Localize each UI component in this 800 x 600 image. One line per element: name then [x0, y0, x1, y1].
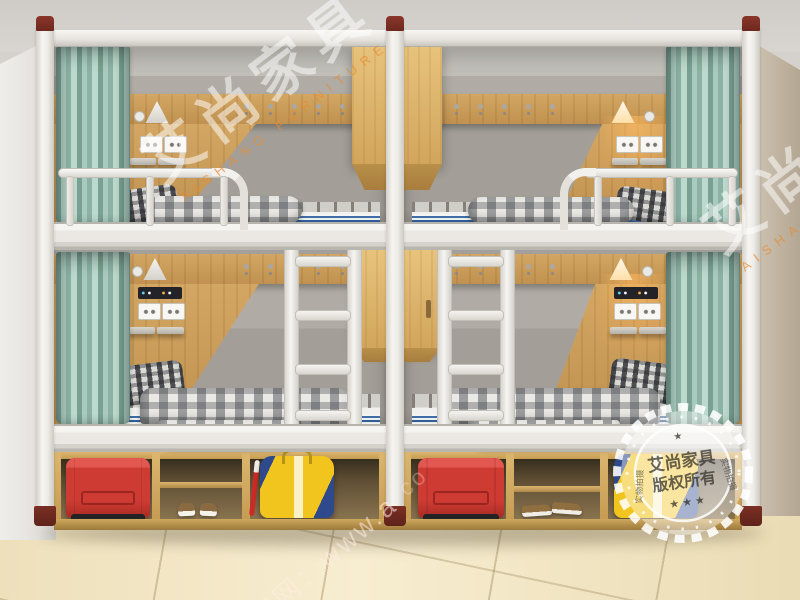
post-foot — [384, 506, 406, 526]
hook-row — [244, 104, 369, 109]
stamp-left-arc-text: 实物拍摄 — [634, 469, 645, 504]
wall-shelf — [639, 327, 666, 334]
coat-hook — [316, 104, 321, 109]
red-suitcase — [66, 458, 150, 518]
baby-shoe — [200, 503, 218, 517]
duffel-bag — [260, 456, 334, 518]
copyright-stamp: ★ 艾尚家具 版权所有 ★ ★ ★ 实物拍摄 实物拍摄 — [611, 401, 755, 545]
red-suitcase — [418, 458, 504, 518]
coat-hook — [454, 104, 459, 109]
suitcase-pocket — [433, 491, 488, 505]
guardrail-bar — [146, 176, 154, 226]
bed-post-center — [386, 28, 404, 510]
wall-hook — [642, 266, 653, 277]
cubby-shelf — [514, 486, 600, 492]
loafer-shoe — [552, 502, 583, 515]
coat-hook — [550, 104, 555, 109]
post-cap — [742, 16, 760, 31]
ladder-rail — [437, 248, 452, 426]
hook-row — [430, 104, 555, 109]
wall-hook — [134, 111, 145, 122]
right-wall — [756, 0, 800, 548]
wall-shelf — [610, 327, 637, 334]
power-outlet — [638, 303, 661, 320]
wall-shelf — [157, 327, 184, 334]
ladder-rung — [295, 310, 351, 321]
coat-hook — [244, 104, 249, 109]
curtain-lower-right — [666, 252, 740, 424]
duffel-strap — [294, 456, 303, 518]
ladder-rail — [284, 248, 299, 426]
ladder-rung — [448, 364, 504, 375]
coat-hook — [268, 264, 273, 269]
storage-divider — [506, 452, 514, 520]
usb-charger-panel — [138, 287, 182, 299]
wall-hook — [644, 111, 655, 122]
power-outlet — [640, 136, 663, 153]
ladder-left — [284, 248, 362, 424]
wall-hook — [132, 266, 143, 277]
guardrail-upper-right — [560, 168, 738, 224]
usb-charger-panel — [614, 287, 658, 299]
suitcase-pocket — [81, 491, 135, 505]
guardrail-bar — [666, 176, 674, 226]
wall-shelf — [128, 327, 155, 334]
stamp-top-star: ★ — [673, 431, 683, 443]
guardrail-tube — [58, 168, 224, 178]
curtain-lower-left — [56, 252, 130, 424]
guardrail-tube — [584, 168, 738, 178]
guardrail-bar — [594, 176, 602, 226]
coat-hook — [502, 104, 507, 109]
guardrail-bar — [66, 176, 74, 226]
wall-shelf — [612, 158, 638, 165]
guardrail-upper-left — [58, 168, 248, 224]
bed-post-left — [36, 28, 54, 510]
coat-hook — [478, 104, 483, 109]
coat-hook — [292, 104, 297, 109]
coat-hook — [550, 264, 555, 269]
power-outlet — [164, 136, 187, 153]
baby-shoe — [178, 503, 196, 517]
loafer-shoe — [522, 504, 553, 517]
cubby-shelf — [160, 482, 242, 488]
post-cap — [386, 16, 404, 31]
power-outlet — [140, 136, 163, 153]
coat-hook — [526, 264, 531, 269]
lamp-glow — [598, 274, 668, 330]
ladder-rung — [295, 410, 351, 421]
ladder-rail — [347, 248, 362, 426]
ladder-rung — [448, 310, 504, 321]
coat-hook — [340, 104, 345, 109]
coat-hook — [268, 104, 273, 109]
guardrail-bar — [220, 176, 228, 226]
ladder-rung — [295, 364, 351, 375]
ladder-rung — [448, 256, 504, 267]
ladder-right — [437, 248, 515, 424]
cabinet-handle — [426, 300, 431, 318]
power-outlet — [138, 303, 161, 320]
ladder-rail — [500, 248, 515, 426]
power-outlet — [616, 136, 639, 153]
storage-divider — [600, 452, 608, 520]
guardrail-bend — [560, 168, 596, 230]
power-outlet — [162, 303, 185, 320]
wall-shelf — [130, 158, 156, 165]
post-foot — [34, 506, 56, 526]
guardrail-bend — [212, 168, 248, 230]
bunk-bed-product-photo: 艾尚家具 AISHANG FURNITURE 艾尚家具 AISHANG FURN… — [0, 0, 800, 600]
post-cap — [36, 16, 54, 31]
power-outlet — [614, 303, 637, 320]
storage-divider — [152, 452, 160, 520]
wall-shelf — [158, 158, 184, 165]
coat-hook — [526, 104, 531, 109]
ladder-rung — [295, 256, 351, 267]
guardrail-bar — [728, 176, 736, 226]
coat-hook — [244, 264, 249, 269]
ladder-rung — [448, 410, 504, 421]
wall-shelf — [640, 158, 666, 165]
